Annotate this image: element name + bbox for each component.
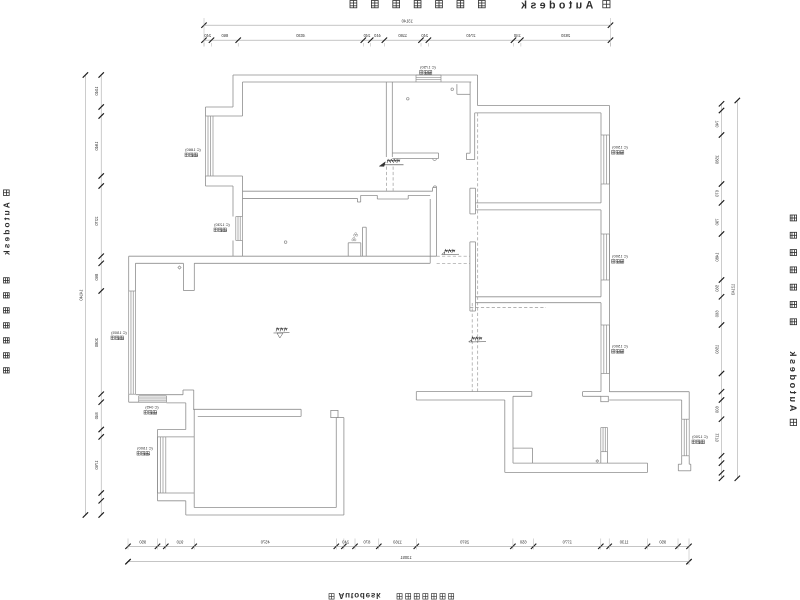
svg-text:2970: 2970 — [459, 539, 469, 544]
svg-text:2740: 2740 — [466, 33, 476, 38]
svg-text:440: 440 — [373, 33, 381, 38]
svg-text:240: 240 — [363, 33, 371, 38]
svg-text:(C 1505): (C 1505) — [111, 330, 127, 335]
svg-text:950: 950 — [659, 539, 667, 544]
svg-text:4030: 4030 — [295, 33, 305, 38]
svg-text:(C 1860): (C 1860) — [185, 147, 201, 152]
svg-text:790: 790 — [715, 219, 720, 227]
svg-text:840: 840 — [94, 412, 99, 420]
svg-text:1160: 1160 — [392, 539, 402, 544]
svg-text:Autodesk: Autodesk — [518, 0, 593, 11]
svg-text:860: 860 — [221, 33, 229, 38]
svg-text:600: 600 — [715, 406, 720, 414]
svg-text:Autodesk: Autodesk — [339, 591, 382, 600]
svg-text:2270: 2270 — [94, 217, 99, 227]
svg-text:Autodesk: Autodesk — [3, 202, 12, 257]
svg-text:1560: 1560 — [715, 345, 720, 355]
svg-text:240: 240 — [513, 33, 521, 38]
svg-text:(C 045): (C 045) — [145, 405, 159, 410]
svg-text:1040: 1040 — [94, 86, 99, 96]
svg-text:870: 870 — [363, 539, 371, 544]
svg-text:1580: 1580 — [715, 155, 720, 165]
svg-text:(C 1500): (C 1500) — [612, 344, 628, 349]
svg-text:14140: 14140 — [78, 289, 83, 301]
svg-text:(C 1500): (C 1500) — [612, 254, 628, 259]
svg-text:240: 240 — [342, 539, 350, 544]
svg-text:1130: 1130 — [619, 539, 629, 544]
svg-text:(C 1750): (C 1750) — [420, 65, 436, 70]
svg-text:1760: 1760 — [94, 460, 99, 470]
svg-text:1180: 1180 — [398, 33, 408, 38]
svg-text:1940: 1940 — [94, 141, 99, 151]
svg-text:Autodesk: Autodesk — [788, 349, 798, 412]
svg-text:(C 1600): (C 1600) — [137, 446, 153, 451]
svg-text:(C 1500): (C 1500) — [612, 145, 628, 150]
svg-text:13051: 13051 — [400, 555, 412, 560]
svg-text:240: 240 — [204, 33, 212, 38]
svg-text:860: 860 — [94, 274, 99, 282]
svg-text:(C 1200): (C 1200) — [692, 434, 708, 439]
svg-text:660: 660 — [715, 310, 720, 318]
svg-text:560: 560 — [715, 285, 720, 293]
svg-text:670: 670 — [715, 190, 720, 198]
svg-text:4570: 4570 — [260, 539, 270, 544]
svg-text:2770: 2770 — [562, 539, 572, 544]
svg-text:12143: 12143 — [730, 284, 735, 296]
svg-text:3080: 3080 — [94, 338, 99, 348]
svg-text:740: 740 — [715, 121, 720, 129]
svg-text:13140: 13140 — [401, 18, 413, 23]
svg-text:2930: 2930 — [560, 33, 570, 38]
svg-text:950: 950 — [139, 539, 147, 544]
svg-text:650: 650 — [519, 539, 527, 544]
svg-text:1480: 1480 — [715, 252, 720, 262]
svg-text:(C 1230): (C 1230) — [214, 222, 230, 227]
svg-text:240: 240 — [421, 33, 429, 38]
svg-text:910: 910 — [176, 539, 184, 544]
svg-text:1170: 1170 — [715, 433, 720, 443]
